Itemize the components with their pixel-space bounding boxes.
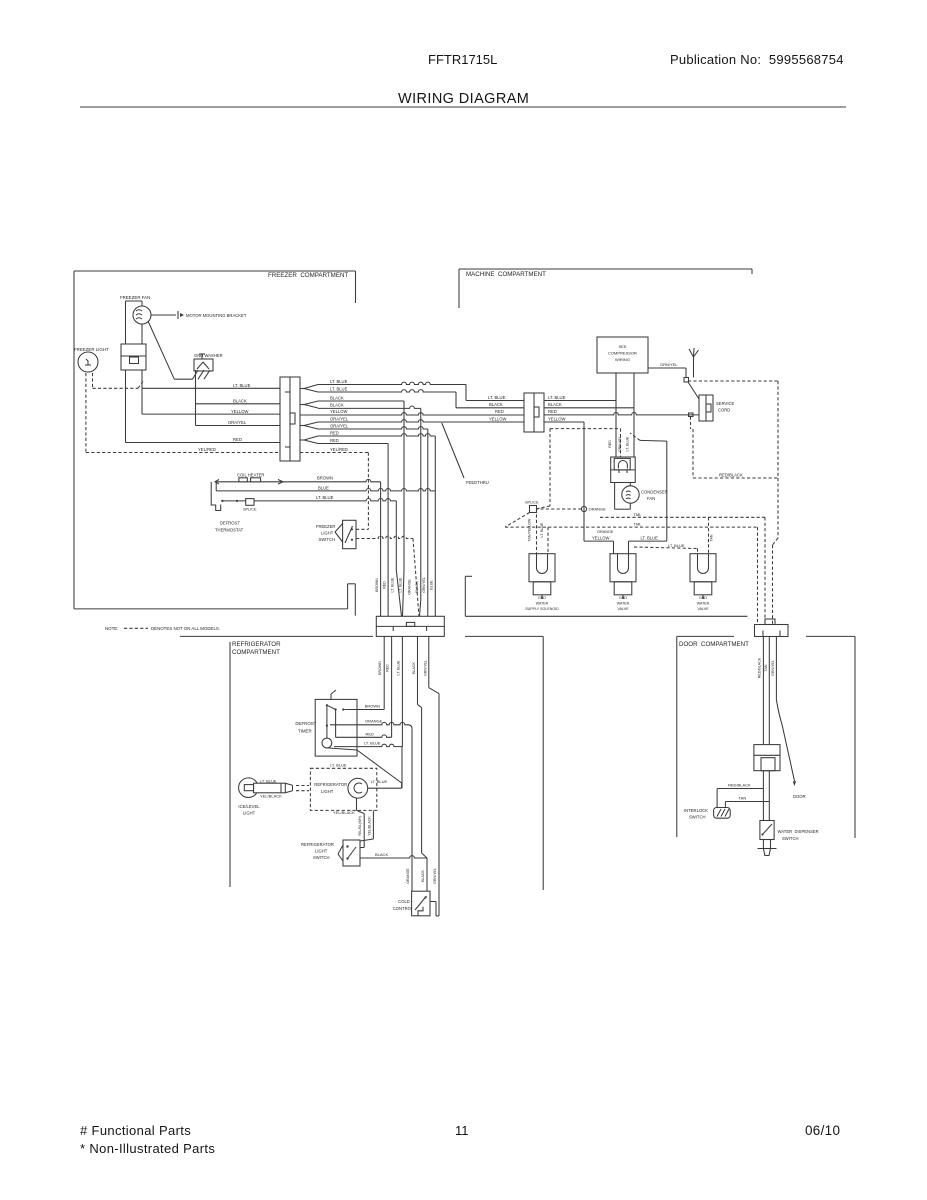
svg-text:FREEZER COMPARTMENT: FREEZER COMPARTMENT (268, 272, 348, 279)
svg-text:BROWN: BROWN (378, 661, 382, 675)
svg-text:THERMOSTAT: THERMOSTAT (215, 528, 244, 533)
svg-text:# Functional Parts: # Functional Parts (80, 1123, 191, 1138)
svg-text:YEL/RED: YEL/RED (198, 447, 216, 452)
svg-text:YELLOW: YELLOW (592, 536, 610, 541)
svg-text:FREEZER: FREEZER (316, 524, 336, 529)
svg-text:WATER DISPENSER: WATER DISPENSER (778, 829, 819, 834)
svg-text:GND: GND (538, 596, 546, 600)
svg-text:WATER: WATER (697, 602, 710, 606)
svg-text:LT. BLUE: LT. BLUE (330, 387, 348, 392)
svg-text:TIMER: TIMER (298, 729, 312, 734)
svg-text:LT. BLUE: LT. BLUE (391, 577, 395, 593)
svg-text:06/10: 06/10 (805, 1123, 840, 1138)
svg-text:WATER: WATER (617, 602, 630, 606)
svg-text:BLACK: BLACK (548, 402, 562, 407)
svg-text:LT. BLUE: LT. BLUE (488, 395, 506, 400)
svg-text:GRN/YEL: GRN/YEL (618, 436, 622, 452)
svg-text:DEFROST: DEFROST (220, 521, 240, 526)
svg-text:ORA/YEL: ORA/YEL (330, 417, 349, 422)
svg-text:FEEDTHRU: FEEDTHRU (466, 480, 489, 485)
svg-text:RED: RED (366, 731, 375, 736)
svg-text:COIL HEATER: COIL HEATER (237, 473, 264, 478)
svg-text:SERVICE: SERVICE (716, 401, 735, 406)
svg-text:YEL/BLACK: YEL/BLACK (368, 816, 372, 836)
svg-text:BLACK: BLACK (375, 852, 388, 857)
svg-text:YELLOW: YELLOW (330, 409, 348, 414)
svg-text:DOOR: DOOR (793, 794, 806, 799)
svg-text:SWITCH: SWITCH (313, 855, 330, 860)
svg-text:LIGHT: LIGHT (321, 531, 334, 536)
svg-text:YEL/BLACK: YEL/BLACK (333, 810, 355, 815)
svg-text:LT. BLUE: LT. BLUE (233, 383, 251, 388)
svg-text:FREEZER LIGHT: FREEZER LIGHT (74, 347, 109, 352)
svg-text:RED/BLACK: RED/BLACK (719, 473, 743, 478)
svg-text:LIGHT: LIGHT (315, 849, 328, 854)
svg-text:LT. BLUE: LT. BLUE (364, 741, 381, 746)
svg-text:DEFROST: DEFROST (295, 721, 316, 726)
svg-text:COLD: COLD (398, 899, 410, 904)
svg-text:YEL/BL(WH): YEL/BL(WH) (358, 816, 362, 837)
svg-text:BROWN: BROWN (375, 578, 379, 592)
svg-text:ORANGE: ORANGE (406, 868, 410, 884)
svg-text:RED: RED (330, 438, 339, 443)
svg-text:BLUE: BLUE (318, 485, 329, 490)
svg-text:TAN: TAN (764, 664, 768, 671)
svg-text:LT. BLUE: LT. BLUE (626, 436, 630, 452)
svg-text:LT. BLUE: LT. BLUE (396, 660, 400, 676)
svg-text:ORANGE: ORANGE (597, 530, 614, 534)
svg-text:RED: RED (548, 409, 557, 414)
svg-text:LT. BLUE: LT. BLUE (260, 778, 277, 783)
svg-text:BLACK: BLACK (330, 403, 344, 408)
svg-text:LIGHT: LIGHT (321, 789, 334, 794)
svg-text:VALVE: VALVE (617, 607, 629, 611)
svg-text:SEE: SEE (618, 344, 626, 349)
svg-text:LT. BLUE: LT. BLUE (398, 577, 402, 593)
svg-text:LT. BLUE: LT. BLUE (330, 763, 347, 768)
svg-text:LT. BLUE: LT. BLUE (316, 495, 334, 500)
svg-text:ORANGE: ORANGE (589, 507, 607, 512)
svg-text:FREEZER FAN: FREEZER FAN (120, 295, 150, 300)
svg-text:LT. BLUE: LT. BLUE (540, 522, 544, 538)
svg-text:LT. BLUE: LT. BLUE (641, 536, 659, 541)
svg-text:COMPARTMENT: COMPARTMENT (232, 649, 280, 656)
svg-text:LT. BLUE: LT. BLUE (548, 395, 566, 400)
svg-text:SWITCH: SWITCH (689, 815, 706, 820)
svg-text:LT. BLUE: LT. BLUE (668, 543, 685, 548)
svg-text:DENOTES NOT ON ALL MODELS.: DENOTES NOT ON ALL MODELS. (151, 626, 220, 631)
svg-text:TML: TML (634, 522, 643, 527)
svg-text:RED: RED (233, 437, 242, 442)
svg-text:RED: RED (386, 664, 390, 672)
svg-text:INTERLOCK: INTERLOCK (684, 808, 708, 813)
svg-text:GRN/YEL: GRN/YEL (423, 660, 427, 676)
svg-text:CONDENSER: CONDENSER (641, 490, 668, 495)
svg-text:WATER: WATER (536, 602, 549, 606)
svg-text:RED: RED (495, 409, 504, 414)
svg-text:LIGHT: LIGHT (243, 811, 256, 816)
svg-text:BROWN: BROWN (317, 476, 333, 481)
svg-text:REFRIGERATOR: REFRIGERATOR (314, 782, 347, 787)
svg-text:CORD: CORD (718, 408, 730, 413)
svg-text:FAN: FAN (647, 496, 655, 501)
svg-text:YEL/RED: YEL/RED (330, 447, 348, 452)
svg-text:MACHINE COMPARTMENT: MACHINE COMPARTMENT (466, 271, 546, 278)
svg-text:ORA/YEL: ORA/YEL (228, 420, 247, 425)
svg-text:VALVE: VALVE (697, 607, 709, 611)
svg-text:ORANGE: ORANGE (365, 719, 383, 724)
svg-text:WIRING: WIRING (615, 357, 630, 362)
svg-text:ICE/LEVEL: ICE/LEVEL (238, 804, 260, 809)
svg-text:TAN/YELLOW: TAN/YELLOW (528, 518, 532, 542)
svg-text:SPLICE: SPLICE (525, 501, 539, 505)
svg-text:YEL/BLACK: YEL/BLACK (260, 794, 282, 799)
svg-text:MOTOR MOUNTING BRACKET: MOTOR MOUNTING BRACKET (186, 313, 247, 318)
svg-text:ORA/YEL: ORA/YEL (330, 424, 349, 429)
svg-text:LT. BLUE: LT. BLUE (330, 379, 348, 384)
svg-text:YELLOW: YELLOW (548, 417, 566, 422)
svg-text:BLUE: BLUE (430, 580, 434, 590)
svg-text:GND WASHER: GND WASHER (194, 353, 223, 358)
svg-text:SWITCH: SWITCH (782, 836, 799, 841)
svg-text:SWITCH: SWITCH (319, 537, 336, 542)
svg-text:REFRIGERATOR: REFRIGERATOR (232, 641, 281, 648)
svg-text:RED/BLACK: RED/BLACK (758, 657, 762, 678)
svg-text:BLACK: BLACK (415, 581, 419, 593)
svg-text:BROWN: BROWN (365, 703, 380, 708)
svg-text:ORANGE: ORANGE (408, 579, 412, 595)
svg-text:GRN/YEL: GRN/YEL (660, 362, 678, 367)
svg-text:RED: RED (608, 440, 612, 448)
svg-text:NOTE:: NOTE: (105, 626, 118, 631)
svg-text:GRN/YEL: GRN/YEL (422, 577, 426, 593)
svg-text:SUPPLY SOLENOID: SUPPLY SOLENOID (525, 607, 559, 611)
svg-text:TAN: TAN (739, 795, 747, 800)
svg-text:COMPRESSOR: COMPRESSOR (608, 351, 637, 356)
svg-text:BLACK: BLACK (330, 396, 344, 401)
svg-text:RED/BLACK: RED/BLACK (728, 782, 751, 787)
svg-text:Publication No: 5995568754: Publication No: 5995568754 (670, 52, 844, 67)
svg-text:RED: RED (382, 581, 386, 589)
svg-text:GRN/YEL: GRN/YEL (771, 660, 775, 676)
svg-text:RED: RED (330, 431, 339, 436)
svg-text:GND: GND (699, 596, 707, 600)
svg-text:* Non-Illustrated Parts: * Non-Illustrated Parts (80, 1141, 215, 1156)
svg-text:11: 11 (455, 1123, 469, 1138)
svg-text:GND: GND (619, 596, 627, 600)
svg-text:WIRING DIAGRAM: WIRING DIAGRAM (398, 91, 529, 107)
svg-text:BLACK: BLACK (421, 870, 425, 882)
svg-text:TML: TML (634, 512, 643, 517)
svg-text:BLACK: BLACK (489, 402, 503, 407)
svg-text:YELLOW: YELLOW (489, 417, 507, 422)
svg-text:SPLICE: SPLICE (243, 508, 257, 512)
svg-text:CONTROL: CONTROL (393, 906, 414, 911)
svg-text:TAN: TAN (710, 534, 714, 541)
svg-text:FFTR1715L: FFTR1715L (428, 52, 497, 67)
svg-text:BLACK: BLACK (233, 398, 247, 403)
svg-text:YELLOW: YELLOW (231, 409, 249, 414)
svg-text:REFRIGERATOR: REFRIGERATOR (301, 842, 334, 847)
svg-text:LT. BLUE: LT. BLUE (371, 779, 388, 784)
svg-text:DOOR COMPARTMENT: DOOR COMPARTMENT (679, 641, 749, 648)
svg-text:GRN/YEL: GRN/YEL (433, 868, 437, 884)
svg-text:BLACK: BLACK (412, 662, 416, 674)
